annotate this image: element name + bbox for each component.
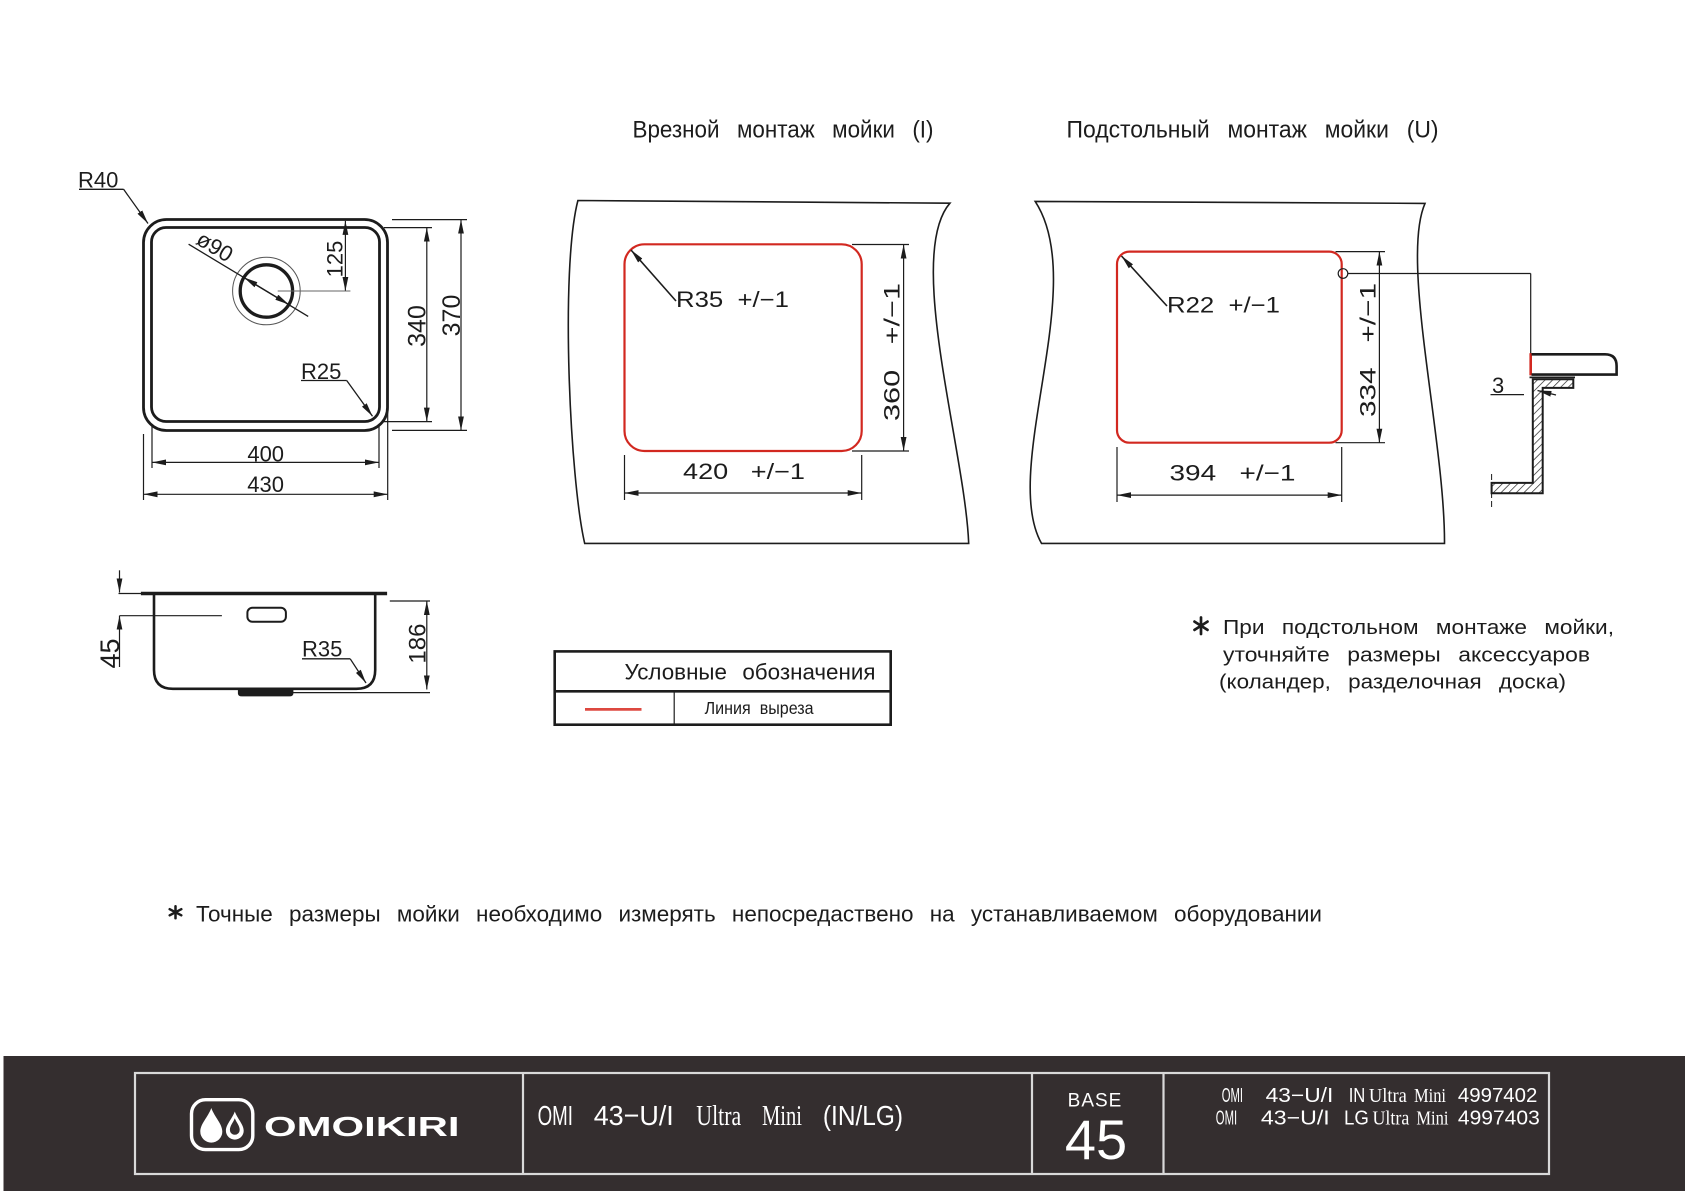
svg-text:Mini: Mini: [762, 1101, 802, 1132]
svg-text:Ultra: Ultra: [1373, 1108, 1410, 1130]
svg-text:Линия выреза: Линия выреза: [705, 698, 814, 718]
svg-text:4997403: 4997403: [1458, 1108, 1540, 1130]
svg-text:Mini: Mini: [1414, 1085, 1446, 1107]
svg-text:(IN/LG): (IN/LG): [823, 1100, 903, 1131]
svg-text:43−U/I: 43−U/I: [1266, 1085, 1334, 1107]
svg-text:Подстольный монтаж мойки (U): Подстольный монтаж мойки (U): [1067, 116, 1439, 143]
svg-text:OMI: OMI: [1216, 1108, 1237, 1130]
svg-text:IN: IN: [1349, 1085, 1366, 1107]
svg-text:(коландер, разделочная доска): (коландер, разделочная доска): [1219, 671, 1566, 694]
svg-text:370: 370: [438, 295, 466, 337]
svg-text:186: 186: [405, 624, 432, 664]
svg-text:43−U/I: 43−U/I: [1261, 1108, 1330, 1130]
svg-text:OMOIKIRI: OMOIKIRI: [264, 1111, 460, 1142]
svg-text:Ultra: Ultra: [696, 1101, 741, 1132]
svg-text:LG: LG: [1344, 1108, 1369, 1130]
svg-text:R35 +/−1: R35 +/−1: [676, 287, 789, 312]
svg-text:394 +/−1: 394 +/−1: [1170, 461, 1296, 486]
svg-text:Mini: Mini: [1416, 1108, 1448, 1130]
svg-text:уточняйте размеры аксессуаров: уточняйте размеры аксессуаров: [1223, 644, 1590, 667]
svg-text:420 +/−1: 420 +/−1: [683, 459, 805, 484]
svg-text:4997402: 4997402: [1458, 1085, 1538, 1107]
svg-text:Врезной монтаж мойки (I): Врезной монтаж мойки (I): [633, 116, 934, 143]
svg-text:R35: R35: [302, 637, 342, 662]
svg-text:45: 45: [95, 638, 125, 668]
svg-text:OMI: OMI: [1222, 1085, 1243, 1107]
svg-text:340: 340: [404, 305, 432, 347]
svg-text:Ultra: Ultra: [1369, 1085, 1407, 1107]
svg-text:125: 125: [323, 241, 348, 278]
svg-text:360 +/−1: 360 +/−1: [880, 283, 905, 421]
svg-text:При подстольном монтаже мойки,: При подстольном монтаже мойки,: [1223, 616, 1614, 639]
svg-text:Точные размеры мойки необходим: Точные размеры мойки необходимо измерять…: [196, 902, 1322, 927]
svg-text:43−U/I: 43−U/I: [594, 1100, 674, 1131]
svg-text:OMI: OMI: [538, 1100, 573, 1131]
svg-text:430: 430: [247, 472, 284, 497]
svg-text:400: 400: [247, 442, 284, 467]
svg-text:45: 45: [1065, 1108, 1127, 1171]
svg-text:R22 +/−1: R22 +/−1: [1167, 293, 1280, 318]
svg-text:334 +/−1: 334 +/−1: [1355, 283, 1380, 417]
svg-text:Условные обозначения: Условные обозначения: [625, 660, 876, 685]
